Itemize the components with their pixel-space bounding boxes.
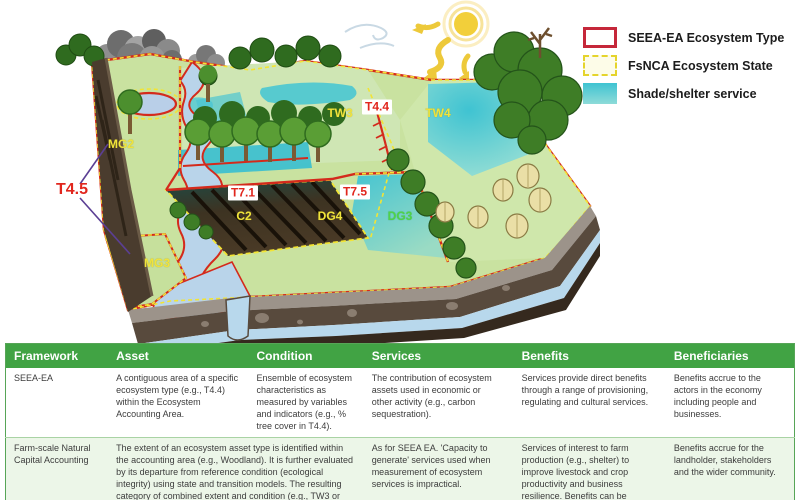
table-row: SEEA-EA A contiguous area of a specific …	[6, 368, 795, 437]
label-mg3: MG3	[144, 256, 170, 270]
label-dg3: DG3	[388, 209, 413, 223]
wind-swirl-icon	[345, 25, 394, 48]
cell-benefits: Services of interest to farm production …	[514, 437, 666, 500]
label-t75: T7.5	[340, 185, 370, 200]
label-mg2: MG2	[108, 137, 134, 151]
col-header-services: Services	[364, 344, 514, 369]
cell-framework: Farm-scale Natural Capital Accounting	[6, 437, 109, 500]
legend-item-ecosystem-type: SEEA-EA Ecosystem Type	[583, 27, 795, 48]
legend-label: Shade/shelter service	[628, 87, 757, 101]
cell-benefits: Services provide direct benefits through…	[514, 368, 666, 437]
col-header-benefits: Benefits	[514, 344, 666, 369]
legend-item-ecosystem-state: FsNCA Ecosystem State	[583, 55, 795, 76]
table-header-row: Framework Asset Condition Services Benef…	[6, 344, 795, 369]
yellow-dashed-swatch-icon	[583, 55, 617, 76]
col-header-beneficiaries: Beneficiaries	[666, 344, 795, 369]
figure-page: T4.5 MG2 MG3 TW3 T4.4 TW4 T7.1 C2 T7.5 D…	[0, 0, 800, 500]
legend-label: SEEA-EA Ecosystem Type	[628, 31, 784, 45]
label-tw3: TW3	[327, 106, 352, 120]
farm-illustration: T4.5 MG2 MG3 TW3 T4.4 TW4 T7.1 C2 T7.5 D…	[0, 0, 600, 345]
farm-illustration-art	[0, 0, 600, 345]
cell-beneficiaries: Benefits accrue to the actors in the eco…	[666, 368, 795, 437]
col-header-condition: Condition	[249, 344, 364, 369]
cell-framework: SEEA-EA	[6, 368, 109, 437]
cell-services: As for SEEA EA. 'Capacity to generate' s…	[364, 437, 514, 500]
label-dg4: DG4	[318, 209, 343, 223]
cell-services: The contribution of ecosystem assets use…	[364, 368, 514, 437]
col-header-framework: Framework	[6, 344, 109, 369]
cell-condition: Ensemble of ecosystem characteristics as…	[249, 368, 364, 437]
label-tw4: TW4	[425, 106, 450, 120]
label-t71: T7.1	[228, 186, 258, 201]
map-legend: SEEA-EA Ecosystem Type FsNCA Ecosystem S…	[583, 27, 795, 111]
table-row: Farm-scale Natural Capital Accounting Th…	[6, 437, 795, 500]
cell-beneficiaries: Benefits accrue for the landholder, stak…	[666, 437, 795, 500]
cell-asset-condition: The extent of an ecosystem asset type is…	[108, 437, 364, 500]
cyan-fill-swatch-icon	[583, 83, 617, 104]
cell-asset: A contiguous area of a specific ecosyste…	[108, 368, 248, 437]
red-outline-swatch-icon	[583, 27, 617, 48]
label-c2: C2	[236, 209, 251, 223]
framework-comparison-table: Framework Asset Condition Services Benef…	[5, 343, 795, 500]
label-t44: T4.4	[362, 100, 392, 115]
legend-item-shade-service: Shade/shelter service	[583, 83, 795, 104]
label-t45: T4.5	[56, 181, 88, 199]
legend-label: FsNCA Ecosystem State	[628, 59, 773, 73]
col-header-asset: Asset	[108, 344, 248, 369]
